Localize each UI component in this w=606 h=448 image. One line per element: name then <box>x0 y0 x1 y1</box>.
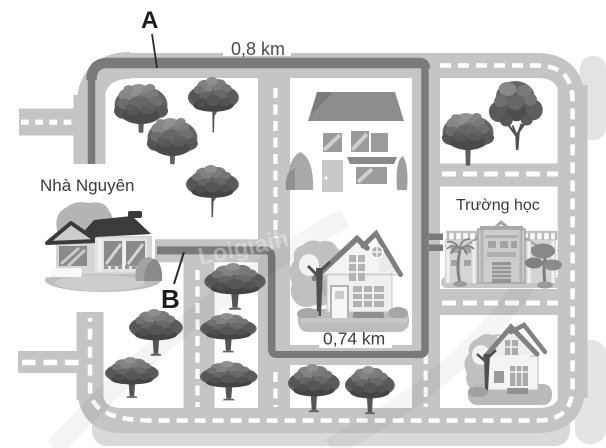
svg-text:0,8 km: 0,8 km <box>231 39 285 59</box>
svg-text:A: A <box>141 7 158 34</box>
svg-text:B: B <box>161 284 180 314</box>
svg-text:Trường học: Trường học <box>456 197 540 214</box>
svg-text:Nhà Nguyên: Nhà Nguyên <box>40 176 135 195</box>
